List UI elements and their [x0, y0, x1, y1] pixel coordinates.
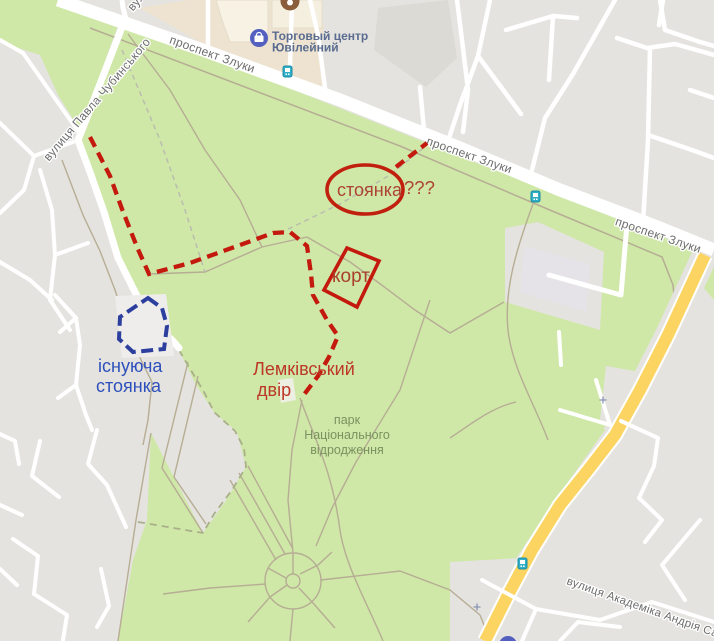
svg-text:існуюча: існуюча — [98, 356, 163, 376]
svg-text:Національного: Національного — [304, 428, 390, 442]
svg-text:відродження: відродження — [310, 443, 384, 457]
svg-text:???: ??? — [404, 177, 435, 198]
svg-text:двір: двір — [257, 380, 291, 400]
svg-text:парк: парк — [334, 413, 361, 427]
svg-text:стоянка: стоянка — [337, 180, 403, 200]
svg-text:Ювілейний: Ювілейний — [272, 41, 339, 55]
svg-text:Лемківський: Лемківський — [253, 359, 355, 379]
svg-text:корт: корт — [332, 266, 370, 287]
svg-text:стоянка: стоянка — [96, 376, 162, 396]
